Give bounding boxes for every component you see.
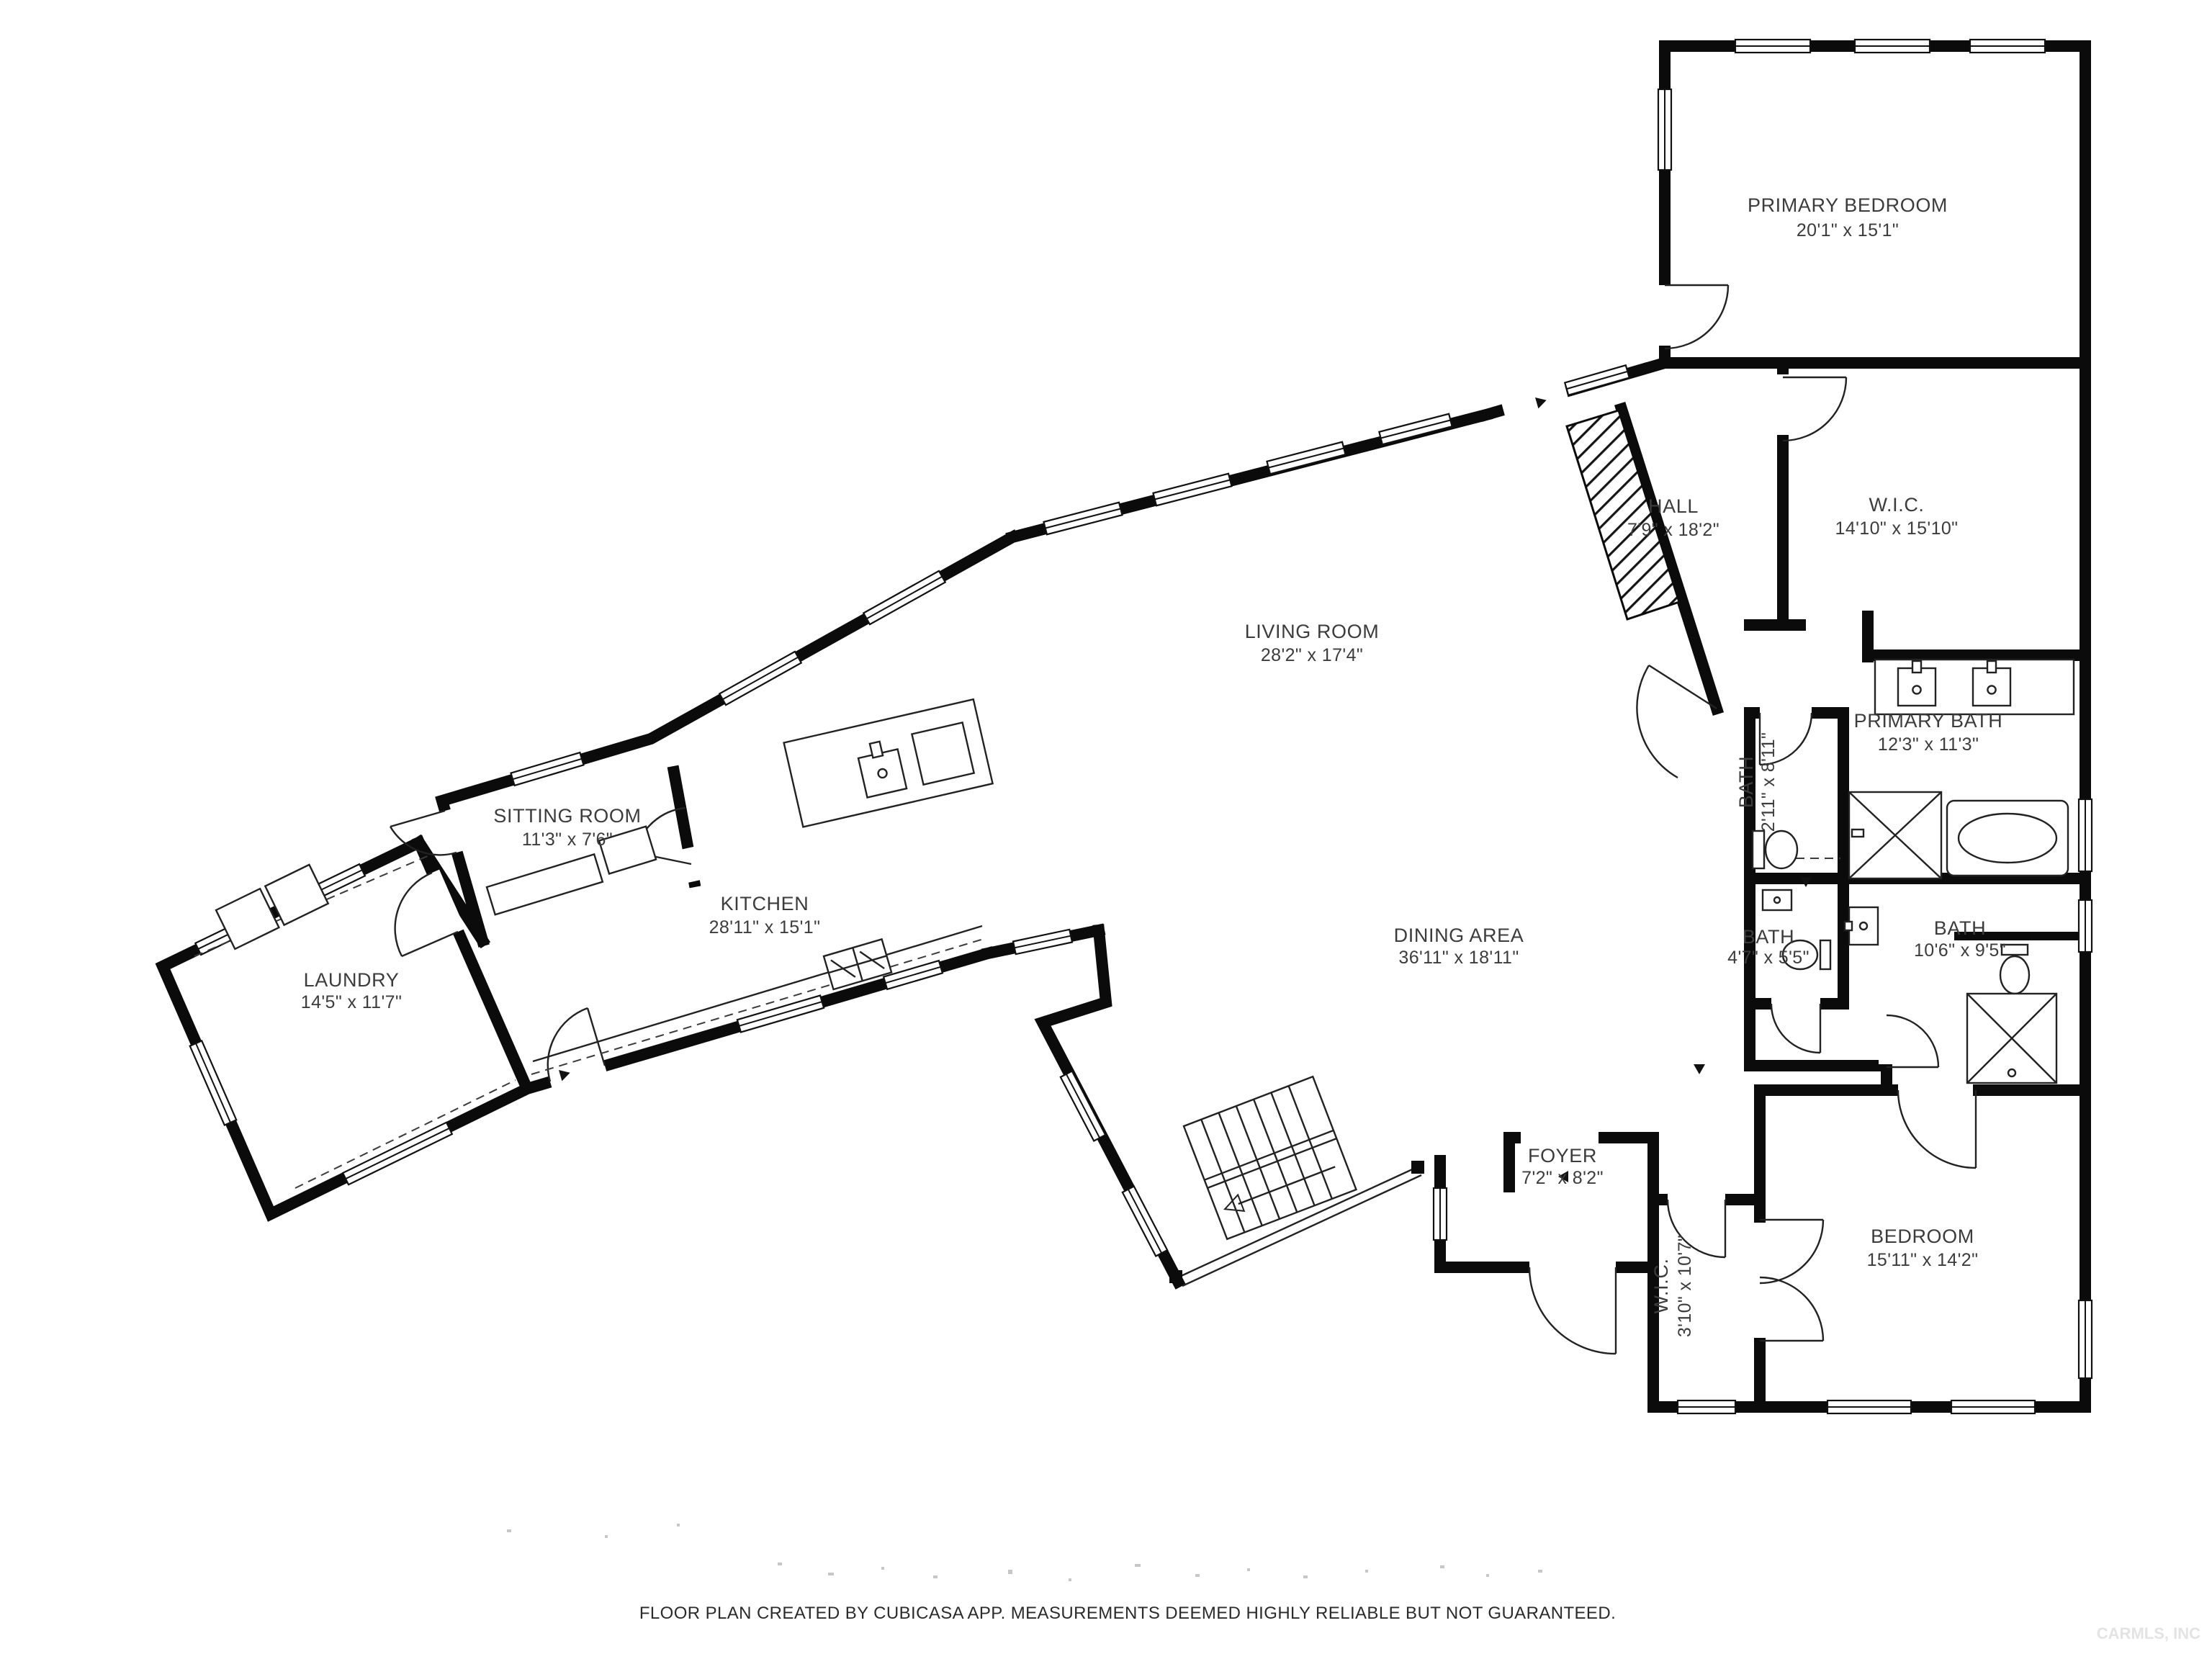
svg-text:BEDROOM: BEDROOM: [1871, 1226, 1974, 1247]
svg-text:36'11" x 18'11": 36'11" x 18'11": [1398, 948, 1519, 968]
svg-text:2'11" x 8'11": 2'11" x 8'11": [1758, 732, 1779, 832]
svg-text:PRIMARY BEDROOM: PRIMARY BEDROOM: [1748, 194, 1948, 216]
faucet-icon: [1912, 661, 1921, 673]
room-label-primary-bedroom: PRIMARY BEDROOM 20'1" x 15'1": [1748, 194, 1948, 240]
svg-text:3'10" x 10'7": 3'10" x 10'7": [1675, 1235, 1695, 1337]
toilet-bowl: [1766, 831, 1797, 868]
svg-text:LAUNDRY: LAUNDRY: [304, 969, 400, 991]
svg-text:KITCHEN: KITCHEN: [721, 893, 809, 914]
windows: [190, 40, 2092, 1413]
room-label-laundry: LAUNDRY 14'5" x 11'7": [301, 969, 402, 1012]
room-label-living-room: LIVING ROOM 28'2" x 17'4": [1245, 621, 1380, 665]
floor-plan-canvas: PRIMARY BEDROOM 20'1" x 15'1" HALL 7'9" …: [0, 0, 2212, 1659]
svg-text:W.I.C.: W.I.C.: [1869, 494, 1924, 516]
svg-text:7'9" x 18'2": 7'9" x 18'2": [1627, 520, 1719, 540]
bedroom-door: [1898, 1090, 1976, 1168]
svg-text:DINING AREA: DINING AREA: [1394, 925, 1524, 946]
svg-text:4'7" x 5'5": 4'7" x 5'5": [1727, 948, 1809, 968]
faucet-icon: [870, 742, 883, 758]
sink-left: [1898, 668, 1935, 706]
room-label-bedroom: BEDROOM 15'11" x 14'2": [1867, 1226, 1979, 1270]
primary-bath-vanity: [1875, 660, 2074, 714]
svg-text:SITTING ROOM: SITTING ROOM: [493, 805, 641, 827]
entry-door: [1529, 1267, 1616, 1354]
floor-plan-page: PRIMARY BEDROOM 20'1" x 15'1" HALL 7'9" …: [0, 0, 2212, 1659]
room-label-dining-area: DINING AREA 36'11" x 18'11": [1394, 925, 1524, 968]
watermark-text: CARMLS, INC: [2097, 1624, 2200, 1642]
toilet-tank: [1753, 831, 1764, 868]
svg-text:7'2" x 8'2": 7'2" x 8'2": [1521, 1168, 1604, 1188]
svg-text:BATH: BATH: [1743, 926, 1794, 948]
bedroom-closet-door-2: [1760, 1277, 1823, 1341]
faucet-icon: [1845, 922, 1852, 930]
svg-text:28'2" x 17'4": 28'2" x 17'4": [1261, 645, 1363, 665]
room-label-primary-bath: PRIMARY BATH 12'3" x 11'3": [1854, 710, 2003, 755]
hall-sink: [1845, 907, 1878, 945]
svg-text:PRIMARY BATH: PRIMARY BATH: [1854, 710, 2003, 732]
room-label-foyer: FOYER 7'2" x 8'2": [1521, 1145, 1604, 1188]
door-openings: [432, 285, 1973, 1338]
walls: [163, 46, 2085, 1407]
faucet-icon: [1987, 661, 1996, 673]
wic-door: [1783, 377, 1846, 441]
artifact-specks: [507, 1524, 1542, 1581]
primary-bedroom-door: [1665, 285, 1728, 349]
bath10-fixtures: [1967, 945, 2056, 1083]
svg-text:11'3" x 7'6": 11'3" x 7'6": [522, 829, 613, 850]
svg-text:14'5" x 11'7": 14'5" x 11'7": [301, 992, 402, 1012]
cooktop: [912, 722, 974, 784]
svg-text:28'11" x 15'1": 28'11" x 15'1": [709, 917, 821, 938]
sink: [1763, 890, 1791, 910]
shower-head-icon: [1852, 829, 1863, 837]
room-label-wic: W.I.C. 14'10" x 15'10": [1835, 494, 1959, 539]
sink-right: [1973, 668, 2010, 706]
svg-text:14'10" x 15'10": 14'10" x 15'10": [1835, 518, 1959, 539]
bath-strip-fixtures: [1753, 831, 1840, 868]
svg-text:20'1" x 15'1": 20'1" x 15'1": [1797, 220, 1899, 240]
svg-text:W.I.C.: W.I.C.: [1650, 1258, 1672, 1313]
kitchen-counter: [531, 926, 984, 1074]
primary-bath-shower: [1849, 792, 1941, 878]
svg-text:FOYER: FOYER: [1528, 1145, 1597, 1166]
kitchen-island: [784, 699, 993, 827]
room-label-bath-2-11: BATH 2'11" x 8'11": [1735, 732, 1779, 832]
svg-text:BATH: BATH: [1934, 917, 1986, 939]
bedroom-closet-door-1: [1760, 1220, 1823, 1283]
svg-text:15'11" x 14'2": 15'11" x 14'2": [1867, 1250, 1979, 1270]
toilet-tank: [1820, 940, 1830, 969]
svg-text:LIVING ROOM: LIVING ROOM: [1245, 621, 1380, 642]
toilet-bowl: [2000, 956, 2029, 994]
room-label-kitchen: KITCHEN 28'11" x 15'1": [709, 893, 821, 938]
svg-text:BATH: BATH: [1735, 756, 1757, 808]
disclaimer-text: FLOOR PLAN CREATED BY CUBICASA APP. MEAS…: [639, 1604, 1616, 1623]
primary-bath-tub: [1947, 801, 2068, 876]
svg-text:HALL: HALL: [1648, 495, 1699, 517]
staircase: [1184, 1076, 1356, 1239]
svg-text:10'6" x 9'5": 10'6" x 9'5": [1914, 940, 2006, 961]
svg-text:12'3" x 11'3": 12'3" x 11'3": [1878, 734, 1979, 755]
